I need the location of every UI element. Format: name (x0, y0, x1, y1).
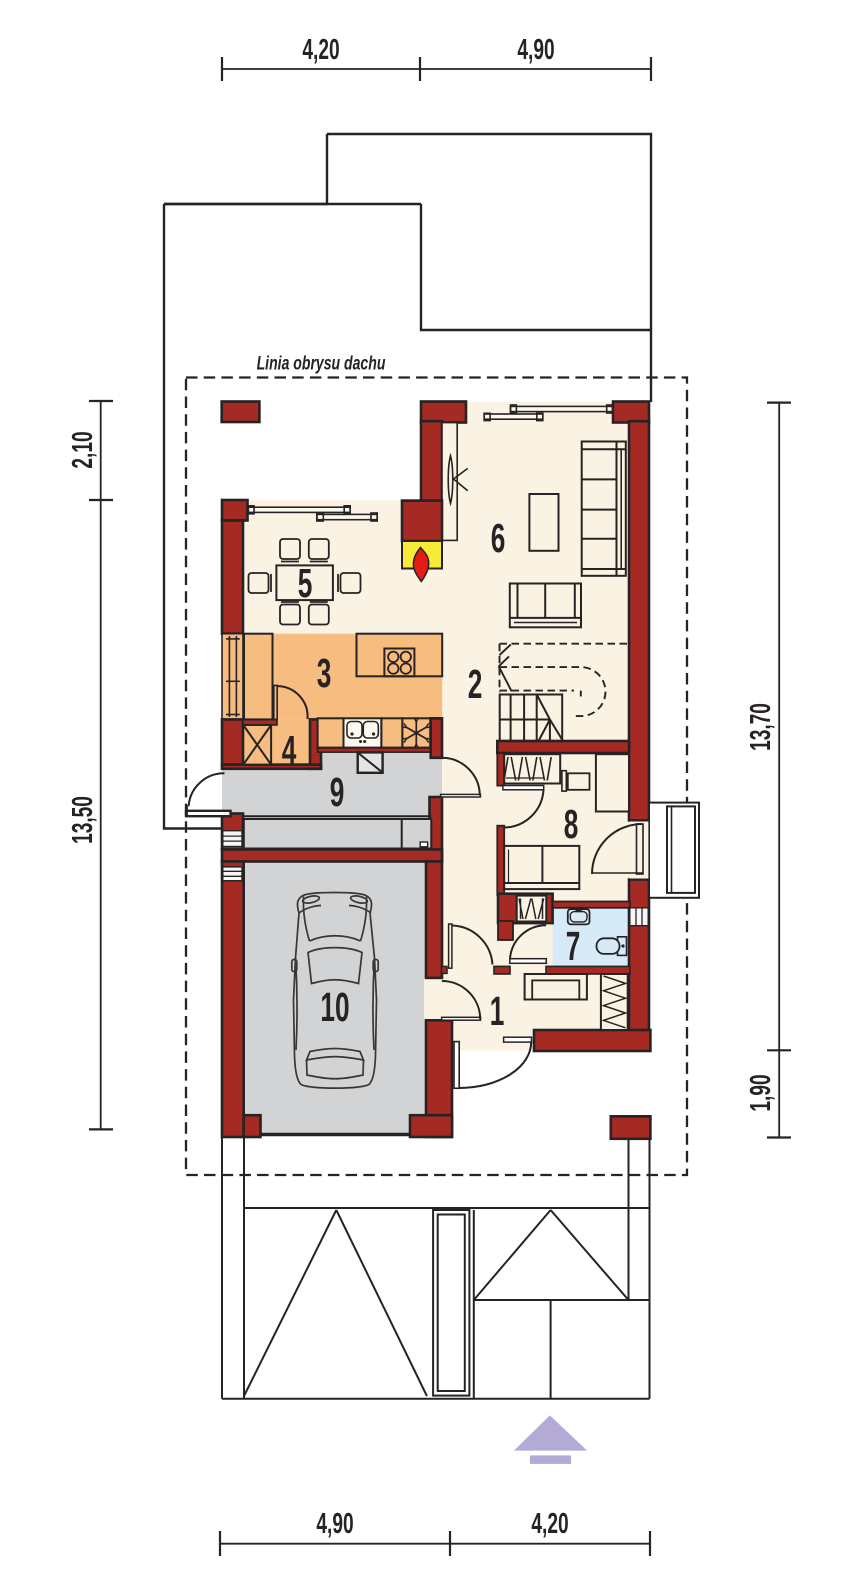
svg-text:4,90: 4,90 (517, 34, 554, 66)
svg-text:4,20: 4,20 (531, 1508, 568, 1540)
svg-text:10: 10 (320, 985, 349, 1030)
svg-text:6: 6 (491, 516, 506, 561)
svg-text:4,20: 4,20 (302, 34, 339, 66)
svg-text:2,10: 2,10 (67, 431, 99, 468)
svg-text:5: 5 (298, 561, 313, 606)
svg-text:13,50: 13,50 (67, 796, 99, 844)
svg-text:4,90: 4,90 (316, 1508, 353, 1540)
svg-text:2: 2 (468, 662, 483, 707)
svg-text:9: 9 (330, 770, 345, 815)
svg-text:1,90: 1,90 (745, 1074, 777, 1111)
svg-text:7: 7 (566, 924, 581, 969)
svg-text:1: 1 (490, 989, 505, 1034)
svg-text:3: 3 (317, 651, 332, 696)
svg-text:4: 4 (282, 728, 297, 773)
svg-text:13,70: 13,70 (745, 703, 777, 751)
svg-text:Linia obrysu dachu: Linia obrysu dachu (257, 352, 386, 374)
svg-text:8: 8 (564, 802, 579, 847)
